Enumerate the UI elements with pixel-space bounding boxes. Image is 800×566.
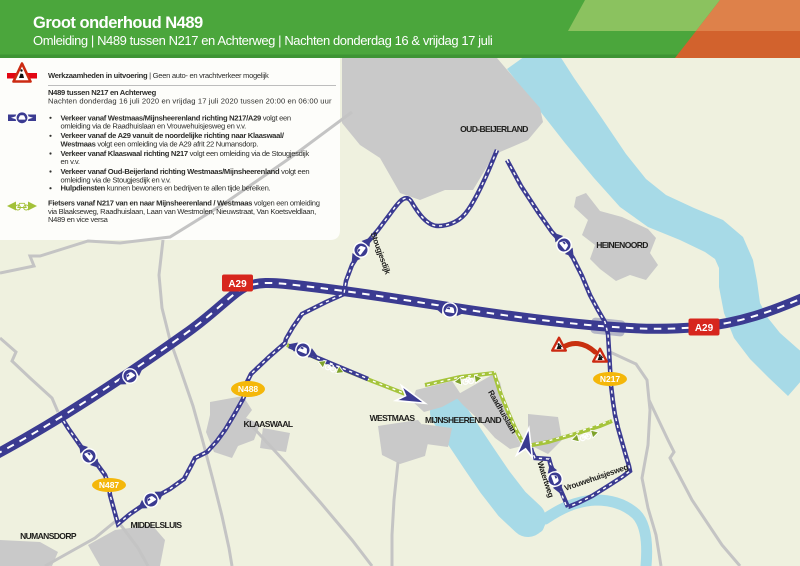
- svg-text:Omleiding | N489 tussen N217 e: Omleiding | N489 tussen N217 en Achterwe…: [33, 33, 493, 48]
- svg-text:en v.v.: en v.v.: [61, 157, 80, 166]
- svg-text:N217: N217: [600, 374, 621, 384]
- svg-text:HEINENOORD: HEINENOORD: [596, 240, 648, 250]
- svg-text:MIJNSHEERENLAND: MIJNSHEERENLAND: [425, 415, 501, 425]
- svg-text:OUD-BEIJERLAND: OUD-BEIJERLAND: [460, 124, 528, 134]
- svg-text:Westmaas volgt een omleiding v: Westmaas volgt een omleiding via de A29 …: [61, 140, 259, 149]
- svg-text:WESTMAAS: WESTMAAS: [370, 413, 416, 423]
- svg-text:A29: A29: [228, 279, 247, 290]
- svg-text:Werkzaamheden in uitvoering |: Werkzaamheden in uitvoering | Geen auto-…: [48, 71, 269, 80]
- svg-text:N489 en vice versa: N489 en vice versa: [48, 215, 109, 224]
- svg-text:N488: N488: [238, 384, 259, 394]
- svg-text:Hulpdiensten kunnen bewoners e: Hulpdiensten kunnen bewoners en bedrijve…: [61, 184, 271, 193]
- svg-text:N487: N487: [99, 480, 120, 490]
- svg-text:KLAASWAAL: KLAASWAAL: [244, 419, 293, 429]
- svg-text:Nachten donderdag 16 juli 2020: Nachten donderdag 16 juli 2020 en vrijda…: [48, 96, 332, 105]
- svg-text:A29: A29: [695, 323, 714, 334]
- svg-text:NUMANSDORP: NUMANSDORP: [20, 531, 77, 541]
- svg-text:MIDDELSLUIS: MIDDELSLUIS: [130, 520, 182, 530]
- svg-text:Groot onderhoud N489: Groot onderhoud N489: [33, 14, 203, 32]
- svg-text:omleiding via de Raadhuislaan: omleiding via de Raadhuislaan en Vrouweh…: [61, 122, 247, 131]
- svg-text:Verkeer vanaf Klaaswaal richti: Verkeer vanaf Klaaswaal richting N217 vo…: [61, 149, 310, 158]
